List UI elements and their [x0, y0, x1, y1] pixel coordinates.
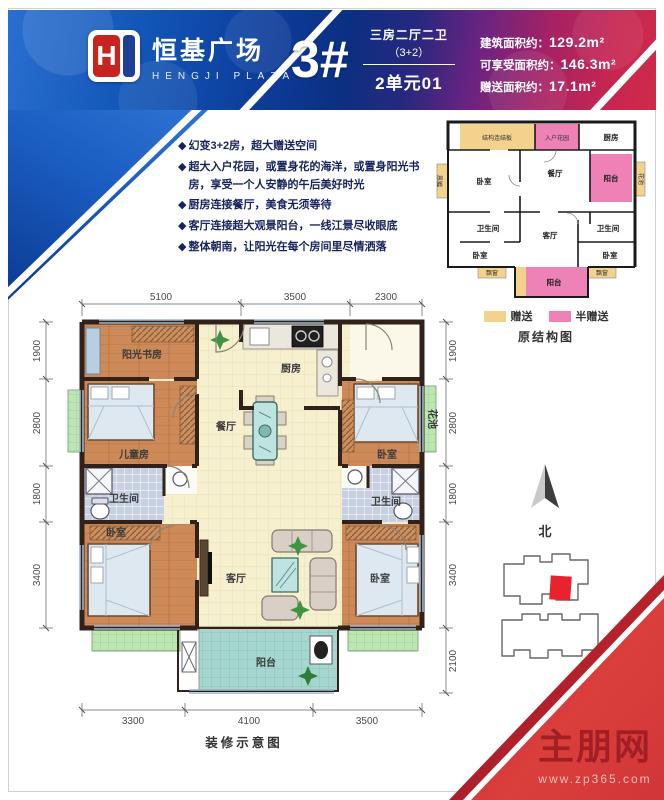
- unit-number: 3#: [291, 26, 349, 94]
- dim-right-2: 2800: [448, 411, 459, 434]
- room-kitchen: 厨房: [281, 362, 301, 375]
- bed-mid-right: [342, 384, 418, 452]
- structure-diagram: 结构连结板 入户花园 厨房 卧室 餐厅 阳台 花池 飘窗 卫生间 卫生间 卧室 …: [430, 112, 662, 345]
- feature-item: ◆客厅连接超大观景阳台，一线江景尽收眼底: [178, 218, 430, 236]
- mini-room-bay-bottom-right: 飘窗: [596, 269, 608, 277]
- unit-name: 2单元01: [375, 69, 442, 94]
- legend-gift: 赠送: [484, 308, 533, 324]
- legend-gift-swatch: [484, 311, 506, 322]
- mini-room-bay-bottom-left: 飘窗: [486, 269, 498, 277]
- stat-gift-area: 赠送面积约： 17.1m²: [480, 78, 616, 95]
- logo-letter: H: [93, 35, 120, 77]
- legend-half-gift: 半赠送: [549, 308, 609, 324]
- room-bedroom-mid-right: 卧室: [377, 448, 397, 461]
- structure-diagram-caption: 原结构图: [518, 328, 574, 345]
- mini-room-living: 客厅: [542, 230, 558, 240]
- mini-room-flower-right: 花池: [637, 173, 645, 185]
- structure-diagram-svg: 结构连结板 入户花园 厨房 卧室 餐厅 阳台 花池 飘窗 卫生间 卫生间 卧室 …: [430, 112, 662, 304]
- dim-bottom-3: 3500: [356, 716, 379, 727]
- logo-blue-bar: [123, 35, 135, 77]
- area-stats: 建筑面积约： 129.2m² 可享受面积约： 146.3m² 赠送面积约： 17…: [480, 34, 616, 100]
- floor-plan-svg: 5100 3500 2300 3300 4100 3500 1900 2800 …: [4, 290, 464, 755]
- brand-name-cn: 恒基广场: [152, 31, 295, 67]
- stat-usable-area: 可享受面积约： 146.3m²: [480, 56, 616, 73]
- room-bath-right: 卫生间: [371, 495, 401, 508]
- unit-block: 3# 三房二厅二卫 （3+2） 2单元01: [291, 26, 455, 94]
- legend: 赠送 半赠送: [484, 308, 609, 324]
- feature-item: ◆厨房连接餐厅，美食无须等待: [178, 197, 430, 215]
- room-bedroom-bottom-right: 卧室: [370, 572, 390, 585]
- dim-bottom-1: 3300: [122, 716, 145, 727]
- feature-item: ◆幻变3+2房，超大赠送空间: [178, 138, 430, 156]
- mini-room-link-board: 结构连结板: [482, 134, 512, 142]
- mini-room-kitchen: 厨房: [604, 132, 619, 142]
- floor-plan-caption: 装修示意图: [204, 735, 283, 750]
- dim-left-2: 2800: [32, 411, 43, 434]
- dim-top-2: 3500: [284, 292, 307, 303]
- mini-room-entry-garden: 入户花园: [545, 134, 569, 142]
- stat-built-area: 建筑面积约： 129.2m²: [480, 34, 616, 51]
- watermark-site-name: 主朋网: [538, 718, 652, 770]
- watermark-url: www.zp365.com: [538, 772, 652, 786]
- mini-room-balcony-right: 阳台: [604, 173, 619, 183]
- unit-type-line1: 三房二厅二卫: [370, 26, 448, 43]
- unit-divider: [363, 64, 455, 65]
- room-kids: 儿童房: [118, 448, 149, 461]
- bed-bottom-left: [88, 526, 160, 616]
- room-study: 阳光书房: [122, 348, 162, 361]
- dim-top-3: 2300: [375, 292, 398, 303]
- dim-right-3: 1800: [448, 482, 459, 505]
- mini-room-dining: 餐厅: [547, 168, 563, 178]
- dim-left-3: 1800: [32, 482, 43, 505]
- feature-list: ◆幻变3+2房，超大赠送空间 ◆超大入户花园，或置身花的海洋，或置身阳光书房，享…: [178, 138, 430, 260]
- bed-kids: [88, 384, 196, 444]
- dim-bottom-2: 4100: [238, 716, 261, 727]
- mini-room-bay-left: 飘窗: [436, 175, 444, 187]
- room-balcony: 阳台: [256, 656, 276, 669]
- dim-left-1: 1900: [32, 339, 43, 362]
- compass-label: 北: [538, 524, 551, 539]
- unit-type-line2: （3+2）: [389, 44, 430, 60]
- brand-name-en: HENGJI PLAZA: [152, 71, 295, 82]
- mini-room-bedroom-left: 卧室: [473, 250, 488, 260]
- mini-room-bedroom-right: 卧室: [603, 250, 618, 260]
- header-banner: H 恒基广场 HENGJI PLAZA 3# 三房二厅二卫 （3+2） 2单元0…: [8, 10, 656, 110]
- room-bath-left: 卫生间: [109, 492, 139, 505]
- legend-half-gift-swatch: [549, 311, 571, 322]
- dim-left-4: 3400: [32, 563, 43, 586]
- room-dining: 餐厅: [215, 420, 236, 433]
- dim-right-1: 1900: [448, 339, 459, 362]
- brand-logo-icon: H: [88, 30, 140, 82]
- room-living: 客厅: [225, 572, 246, 585]
- feature-item: ◆超大入户花园，或置身花的海洋，或置身阳光书房，享受一个人安静的午后美好时光: [178, 159, 430, 195]
- bed-bottom-right: [346, 526, 419, 616]
- mini-room-balcony-bottom: 阳台: [547, 277, 562, 287]
- compass: 北: [505, 458, 585, 555]
- brand-logo: H 恒基广场 HENGJI PLAZA: [88, 30, 295, 82]
- feature-item: ◆整体朝南，让阳光在每个房间里尽情洒落: [178, 239, 430, 257]
- dim-top-1: 5100: [150, 292, 173, 303]
- north-arrow-icon: 北: [505, 458, 585, 550]
- corner-graphic: 主朋网 www.zp365.com: [449, 575, 664, 800]
- mini-room-bath-left: 卫生间: [477, 223, 500, 233]
- watermark: 主朋网 www.zp365.com: [538, 718, 652, 786]
- room-bedroom-bottom-left: 卧室: [106, 526, 126, 539]
- mini-room-bath-right: 卫生间: [597, 223, 620, 233]
- mini-room-bedroom-top: 卧室: [477, 176, 492, 186]
- room-flower-box: 花池: [426, 409, 439, 429]
